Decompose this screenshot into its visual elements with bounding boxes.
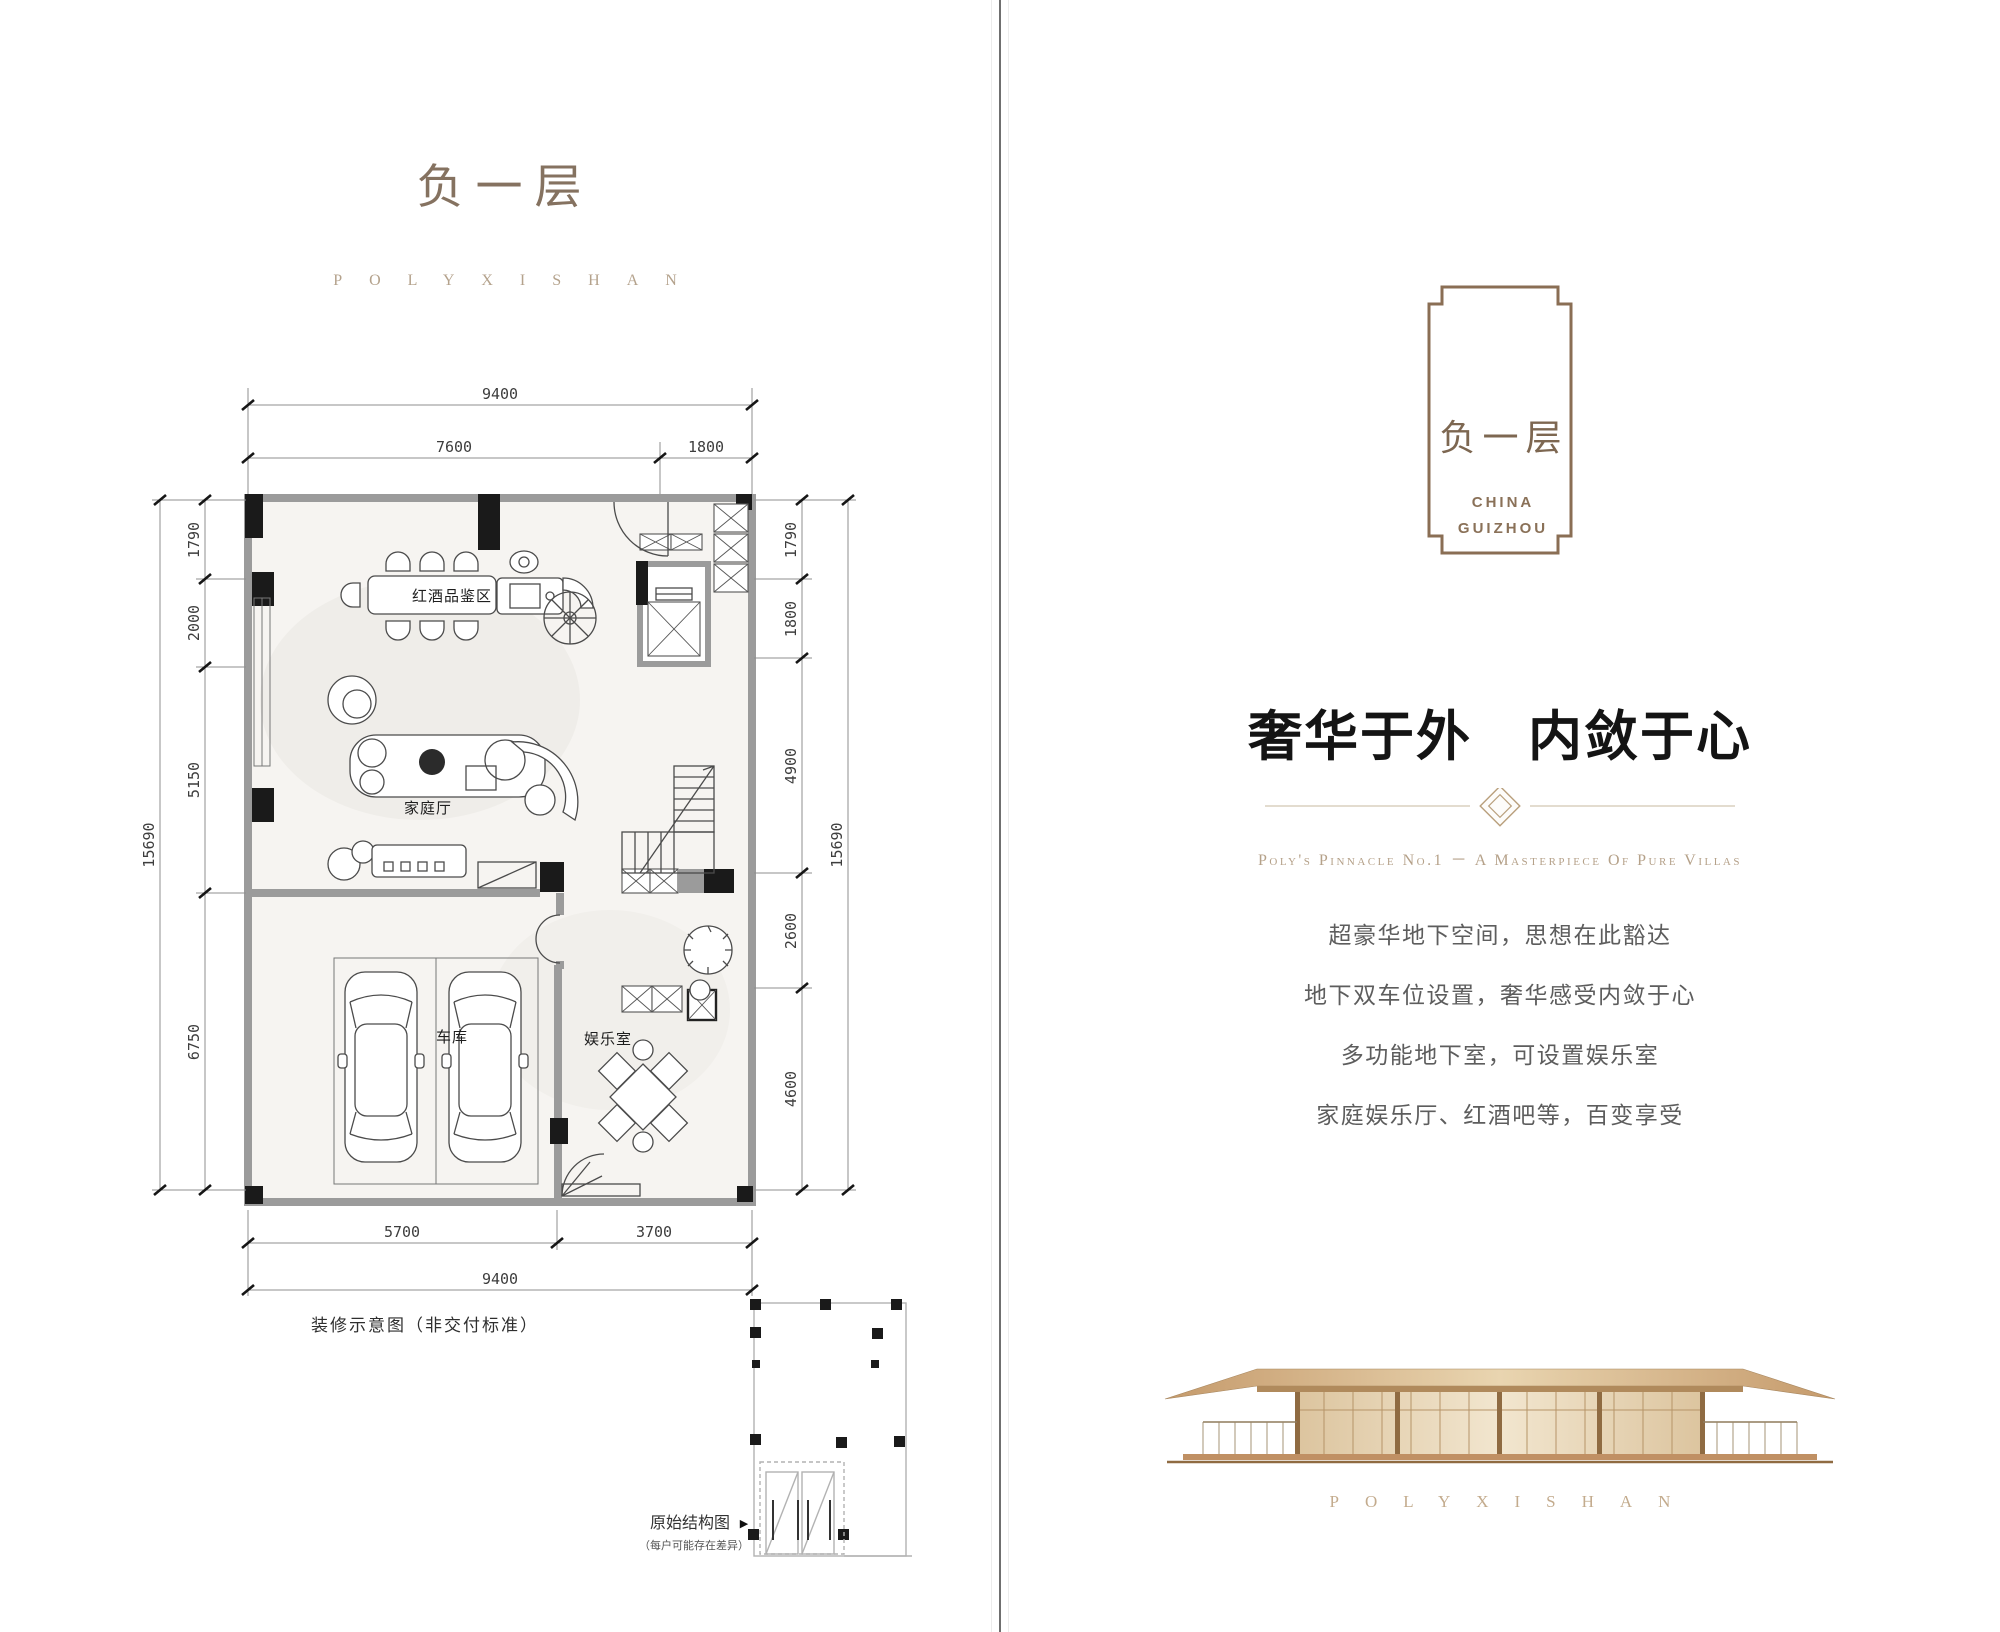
emblem-subtitle-1: CHINA [1472,494,1535,511]
building-base [1167,1454,1833,1462]
structure-pointer-icon: ▶ [740,1518,749,1530]
dim-right-seg-2: 1800 [782,601,800,637]
left-page-brand: POLYXISHAN [0,272,1010,290]
structure-mini-diagram: 原始结构图 ▶ （每户可能存在差异） [639,1299,912,1556]
floor-plan: 红酒品鉴区 家庭厅 车库 娱乐室 [140,330,920,1580]
dim-left-seg-2: 2000 [185,605,203,641]
building-glass-wall [1295,1392,1705,1454]
dim-top-seg-1: 7600 [436,438,472,456]
label-entertainment: 娱乐室 [584,1031,632,1048]
page-fold-shadow-right [1008,0,1009,1632]
dim-right-seg-5: 4600 [782,1071,800,1107]
dim-bottom-seg-1: 5700 [384,1223,420,1241]
dim-bottom-total: 9400 [482,1270,518,1288]
label-garage: 车库 [436,1029,468,1046]
emblem-title: 负一层 [1439,418,1568,458]
page-divider-line [999,0,1001,1632]
right-page-headline: 奢华于外 内敛于心 [1010,692,1990,771]
dim-right-seg-1: 1790 [782,522,800,558]
dim-left-seg-4: 6750 [185,1024,203,1060]
emblem-frame: 负一层 CHINA GUIZHOU [1424,272,1580,574]
dim-left-seg-3: 5150 [185,762,203,798]
right-page-tagline: Poly's Pinnacle No.1 － A Masterpiece Of … [1010,846,1990,870]
paragraph-3: 多功能地下室，可设置娱乐室 [1010,1038,1990,1098]
dim-right-total: 15690 [828,822,846,867]
structure-sub-label: （每户可能存在差异） [639,1538,749,1552]
right-page-paragraphs: 超豪华地下空间，思想在此豁达 地下双车位设置，奢华感受内敛于心 多功能地下室，可… [1010,918,1990,1158]
emblem-subtitle-2: GUIZHOU [1458,520,1548,537]
spiral-stair [544,592,596,644]
dim-left-seg-1: 1790 [185,522,203,558]
garage-car-2 [442,972,528,1162]
right-page-brand: POLYXISHAN [1010,1492,1990,1512]
diamond-ornament-icon [1480,788,1520,826]
page-fold-shadow-left [991,0,992,1632]
dim-top-total: 9400 [482,385,518,403]
dim-right-seg-3: 4900 [782,748,800,784]
dim-top-seg-2: 1800 [688,438,724,456]
brochure-page: 负一层 POLYXISHAN [0,0,2000,1632]
elevator-shaft [636,561,708,664]
label-wine-tasting: 红酒品鉴区 [412,588,492,605]
structure-label: 原始结构图 [650,1514,730,1532]
paragraph-4: 家庭娱乐厅、红酒吧等，百变享受 [1010,1098,1990,1158]
dim-left-total: 15690 [140,822,158,867]
ornament-divider [1265,788,1735,828]
building-elevation-illustration [1145,1352,1855,1477]
plan-note: 装修示意图（非交付标准） [311,1316,539,1335]
garage-group [334,958,538,1184]
paragraph-1: 超豪华地下空间，思想在此豁达 [1010,918,1990,978]
label-family-hall: 家庭厅 [404,800,452,817]
left-page-title: 负一层 [0,148,1010,217]
garage-car-1 [338,972,424,1162]
paragraph-2: 地下双车位设置，奢华感受内敛于心 [1010,978,1990,1038]
dim-bottom-seg-2: 3700 [636,1223,672,1241]
dim-right-seg-4: 2600 [782,913,800,949]
